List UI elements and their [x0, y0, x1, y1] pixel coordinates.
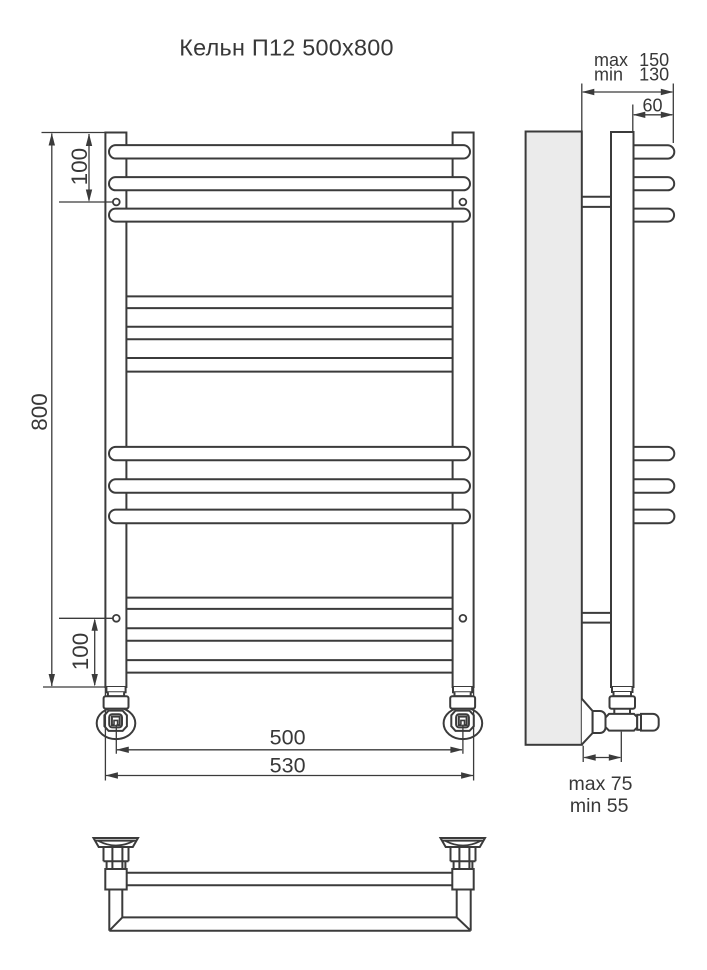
svg-text:min: min: [594, 65, 623, 85]
svg-text:100: 100: [68, 633, 93, 671]
svg-text:500: 500: [270, 726, 306, 750]
svg-text:130: 130: [639, 65, 669, 85]
svg-text:Кельн П12 500x800: Кельн П12 500x800: [179, 35, 393, 61]
svg-text:100: 100: [67, 148, 92, 186]
svg-text:max 75: max 75: [569, 773, 633, 795]
svg-text:530: 530: [270, 754, 306, 778]
svg-text:60: 60: [642, 96, 662, 116]
svg-text:800: 800: [27, 393, 52, 431]
svg-text:min 55: min 55: [570, 795, 629, 817]
